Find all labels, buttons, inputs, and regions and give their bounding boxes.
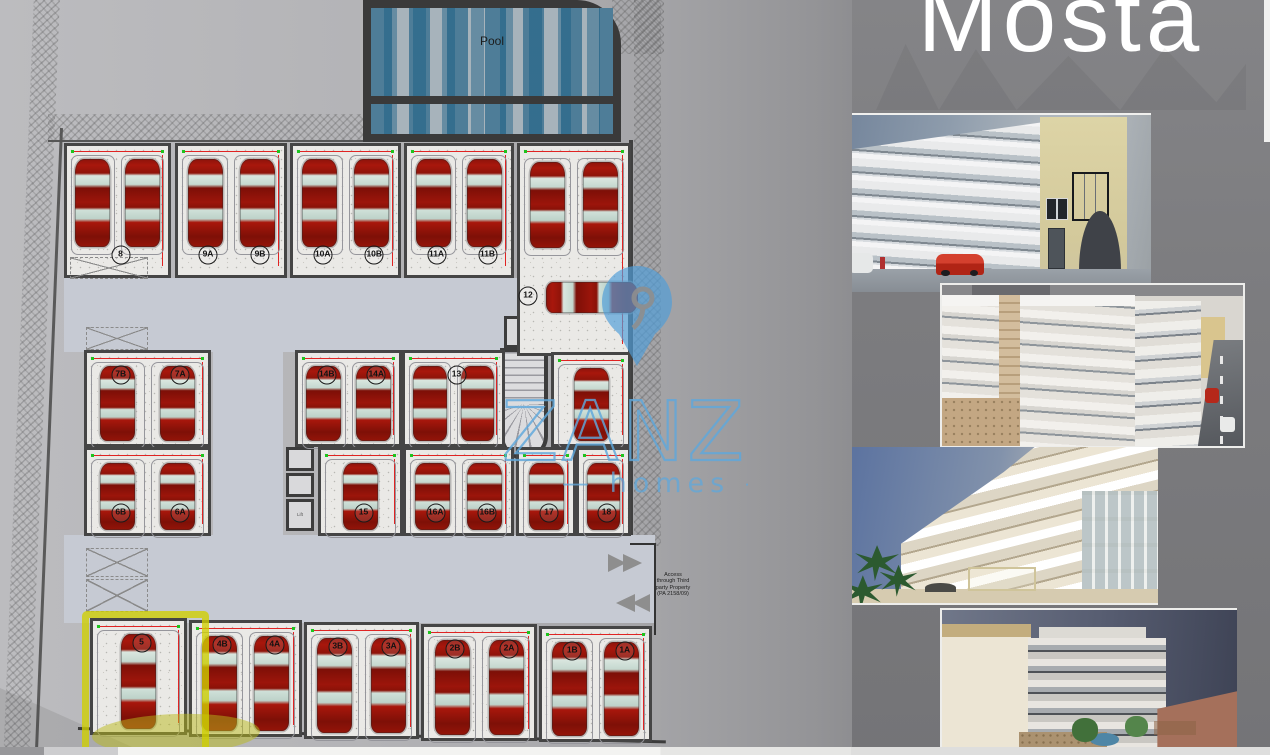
bay-number-label: 14B [317,366,336,385]
service-room [286,447,314,471]
void-area-marker [86,327,148,350]
parking-bay: 16A16B [403,447,514,536]
car-icon [416,159,451,247]
driveway-lower [64,535,655,623]
service-room [286,473,314,497]
bay-number-label: 17 [540,504,559,523]
bay-number-label: 2A [500,640,519,659]
wall-coping [942,624,1031,637]
dimension-line [547,634,644,635]
bay-number-label: 10B [365,246,384,265]
pool-label: Pool [371,34,613,48]
render-photo-rear-balconies[interactable] [852,447,1158,605]
side-wall [942,624,1031,750]
parking-bay [517,143,631,356]
bay-number-label: 15 [354,504,373,523]
umbrella [925,583,956,592]
dimension-line [559,360,623,361]
bay-number-label: 18 [597,504,616,523]
parking-bay: 3B3A [304,622,419,739]
dimension-line [72,151,163,152]
parking-bay: 13 [402,350,505,447]
dimension-line [92,455,203,456]
parking-bay: 10A10B [290,143,401,278]
parking-bay: 2B2A [421,624,537,741]
page-edge-strip [1264,0,1270,142]
car-icon [75,159,110,247]
bay-number-label: 14A [367,366,386,385]
bay-number-label: 4B [213,636,232,655]
parking-bay: 17 [516,447,576,536]
driveway-center [213,350,283,537]
car-icon [240,159,275,247]
render-photo-back-pool[interactable] [940,608,1237,750]
bay-number-label: 2B [446,640,465,659]
deck-furniture [1154,721,1195,735]
red-car [936,254,984,275]
car-icon [125,159,160,247]
lift: Lift [286,499,314,531]
parking-bay: 11A11B [404,143,514,278]
pool-water-strip [371,104,613,134]
parking-bay: 15 [318,447,403,536]
bay-number-label: 16A [426,504,445,523]
tree [1072,718,1099,742]
void-area-marker [86,548,148,577]
pool-water-main: Pool [371,8,613,96]
car-icon [188,159,223,247]
car-icon [546,282,638,313]
parking-bay: 6B6A [84,447,211,536]
car-icon [583,162,618,248]
access-note: Access through Third party Property (PA … [655,572,691,597]
render-photo-corner-aerial[interactable] [940,283,1245,448]
building-right-face [1135,301,1201,446]
parking-bay: 1B1A [539,626,652,742]
bay-number-label: 3A [382,638,401,657]
car-icon [354,159,389,247]
car-icon [530,162,565,248]
car-icon [574,368,609,441]
bay-number-label: 7B [111,366,130,385]
bay-number-label: 10A [313,246,332,265]
staircase [500,348,548,460]
white-car [852,253,873,272]
bay-number-label: 1B [563,642,582,661]
red-car [1205,388,1219,402]
dimension-line [584,455,623,456]
ramp-wall [630,543,656,545]
pergola [968,567,1035,590]
dimension-line [197,628,294,629]
car-icon [467,159,502,247]
bay-number-label: 11B [478,246,497,265]
lift-label: Lift [297,513,303,518]
dimension-line [303,358,394,359]
dimension-line [524,455,568,456]
bay-number-label: 6B [111,504,130,523]
bay-number-label: 13 [447,366,466,385]
parking-bay: 9A9B [175,143,287,278]
bay-number-label: 1A [615,642,634,661]
white-car [1220,417,1235,431]
bay-number-label: 6A [171,504,190,523]
property-listing-image: Pool Lift Lift Access through Third part… [0,0,1270,755]
rubble-wall [942,398,1020,446]
highlight-marker [82,611,209,755]
ramp-direction-arrows-icon [606,548,652,620]
pool-area: Pool [363,0,621,142]
renders-panel: Mosta [852,0,1270,755]
pedestrian [880,257,885,269]
page-edge-bottom [0,747,1270,755]
stair-treads [504,352,544,404]
bay-number-label: 4A [265,636,284,655]
party-wall-hatch-top [48,114,366,142]
bay-number-label: 11A [427,246,446,265]
bay-number-label: 16B [478,504,497,523]
bay-number-label: 8 [111,246,130,265]
dimension-line [410,358,497,359]
dimension-line [298,151,393,152]
bay-number-label: 7A [171,366,190,385]
roof-terrace [942,295,1135,306]
window [1046,198,1067,219]
dimension-line [92,358,203,359]
bay-number-label: 5 [132,634,151,653]
garage-floor-plan[interactable]: Pool Lift Lift Access through Third part… [0,0,852,755]
bay-number-label: 9B [251,246,270,265]
dimension-line [429,632,529,633]
doorway [1048,228,1065,269]
bay-number-label: 3B [328,638,347,657]
dimension-line [411,455,506,456]
dimension-line [312,630,411,631]
party-wall-hatch-right [634,0,661,546]
parking-bay: 18 [576,447,631,536]
parking-bay: 14B14A [295,350,402,447]
void-area-marker [86,579,148,612]
parking-bay [551,352,631,447]
car-icon [413,366,447,441]
dimension-line [183,151,279,152]
dimension-line [412,151,506,152]
dimension-line [326,455,395,456]
bay-number-label: 12 [519,287,538,306]
car-icon [302,159,337,247]
road-markings [1220,356,1223,446]
dimension-line [525,151,623,152]
background-roofs [972,285,1050,295]
render-photo-street-facade[interactable] [852,113,1151,292]
bay-number-label: 9A [199,246,218,265]
glazed-balconies [1082,491,1159,603]
void-area-marker [70,257,148,279]
parking-bay: 7B7A [84,350,211,447]
